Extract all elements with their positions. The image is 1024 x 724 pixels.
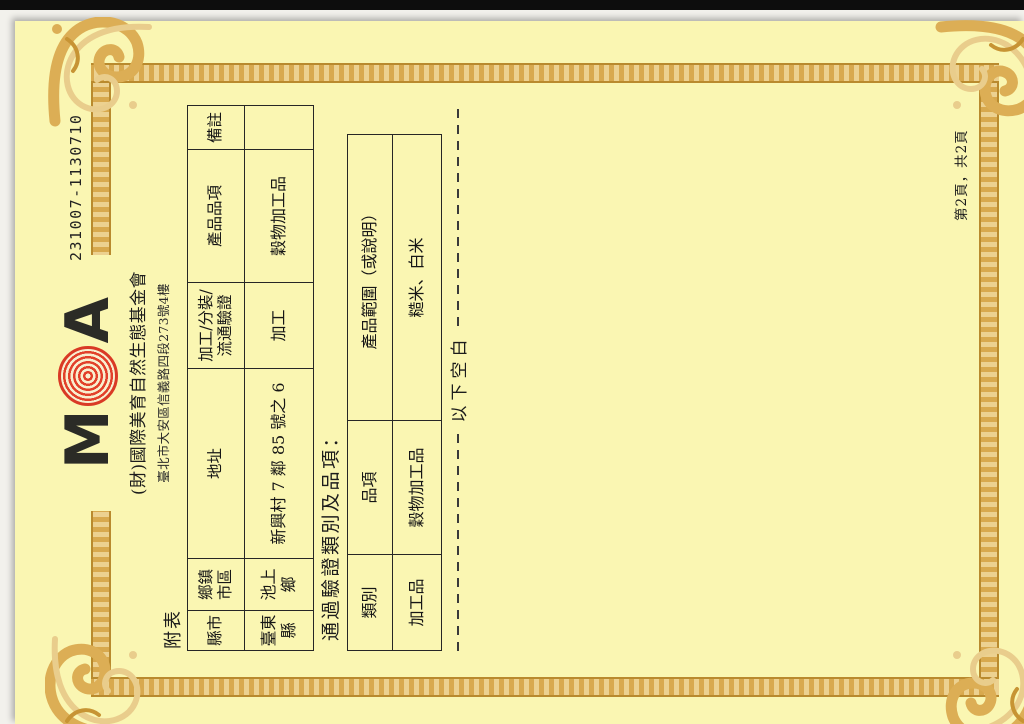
- facility-county: 臺東縣: [245, 611, 314, 651]
- facility-header-cert-type: 加工/分裝/流通驗證: [188, 283, 245, 369]
- dash-line: [457, 431, 459, 652]
- scanned-certificate-page: 231007-1130710 M A (財)國際美育自然生態基金會 臺北市大安區…: [0, 0, 1024, 724]
- facility-header-products: 產品品項: [188, 150, 245, 283]
- org-name: (財)國際美育自然生態基金會: [124, 255, 149, 511]
- certified-data-row: 加工品 穀物加工品 糙米、白米: [393, 135, 442, 651]
- frame-border-bottom: [979, 63, 999, 697]
- frame-border-right: [91, 63, 999, 83]
- certified-items-table: 類別 品項 產品範圍（或說明） 加工品 穀物加工品 糙米、白米: [347, 134, 442, 651]
- corner-flourish-icon: [933, 17, 1024, 129]
- certified-header-category: 類別: [348, 555, 393, 651]
- corner-flourish-icon: [45, 631, 157, 724]
- frame-border-left: [91, 677, 999, 697]
- moa-logo-rings-icon: [58, 346, 118, 406]
- facility-table: 縣市 鄉鎮市區 地址 加工/分裝/流通驗證 產品品項 備註 臺東縣 池上鄉 新興…: [187, 105, 314, 651]
- certified-header-item: 品項: [348, 421, 393, 555]
- facility-header-remarks: 備註: [188, 106, 245, 150]
- certified-header-scope: 產品範圍（或說明）: [348, 135, 393, 421]
- blank-below-label: 以下空白: [445, 335, 470, 423]
- facility-header-township: 鄉鎮市區: [188, 559, 245, 611]
- facility-township: 池上鄉: [245, 559, 314, 611]
- facility-header-row: 縣市 鄉鎮市區 地址 加工/分裝/流通驗證 產品品項 備註: [188, 106, 245, 651]
- certificate-paper: 231007-1130710 M A (財)國際美育自然生態基金會 臺北市大安區…: [15, 21, 1024, 724]
- moa-logo: M A: [57, 255, 119, 511]
- logo-letter-m: M: [60, 409, 117, 469]
- certified-header-row: 類別 品項 產品範圍（或說明）: [348, 135, 393, 651]
- facility-data-row: 臺東縣 池上鄉 新興村 7 鄰 85 號之 6 加工 穀物加工品: [245, 106, 314, 651]
- scanner-edge-strip: [0, 0, 1024, 10]
- appendix-label: 附表: [159, 609, 185, 649]
- facility-header-address: 地址: [188, 369, 245, 559]
- certified-category: 加工品: [393, 555, 442, 651]
- blank-below-divider: 以下空白: [445, 106, 470, 651]
- certified-item: 穀物加工品: [393, 421, 442, 555]
- facility-remarks: [245, 106, 314, 150]
- dash-line: [457, 106, 459, 327]
- logo-letter-a: A: [60, 297, 117, 343]
- facility-address: 新興村 7 鄰 85 號之 6: [245, 369, 314, 559]
- certificate-number: 231007-1130710: [67, 114, 85, 261]
- page-number-label: 第2頁，共2頁: [950, 129, 970, 221]
- facility-cert-type: 加工: [245, 283, 314, 369]
- certified-scope: 糙米、白米: [393, 135, 442, 421]
- org-address: 臺北市大安區信義路四段273號4樓: [153, 255, 172, 511]
- certified-section-title: 通過驗證類別及品項：: [316, 426, 343, 641]
- facility-header-county: 縣市: [188, 611, 245, 651]
- corner-flourish-icon: [933, 631, 1024, 724]
- rotated-document: 231007-1130710 M A (財)國際美育自然生態基金會 臺北市大安區…: [17, 23, 1017, 723]
- org-header: M A (財)國際美育自然生態基金會 臺北市大安區信義路四段273號4樓: [55, 255, 177, 511]
- facility-products: 穀物加工品: [245, 150, 314, 283]
- corner-flourish-icon: [45, 17, 157, 129]
